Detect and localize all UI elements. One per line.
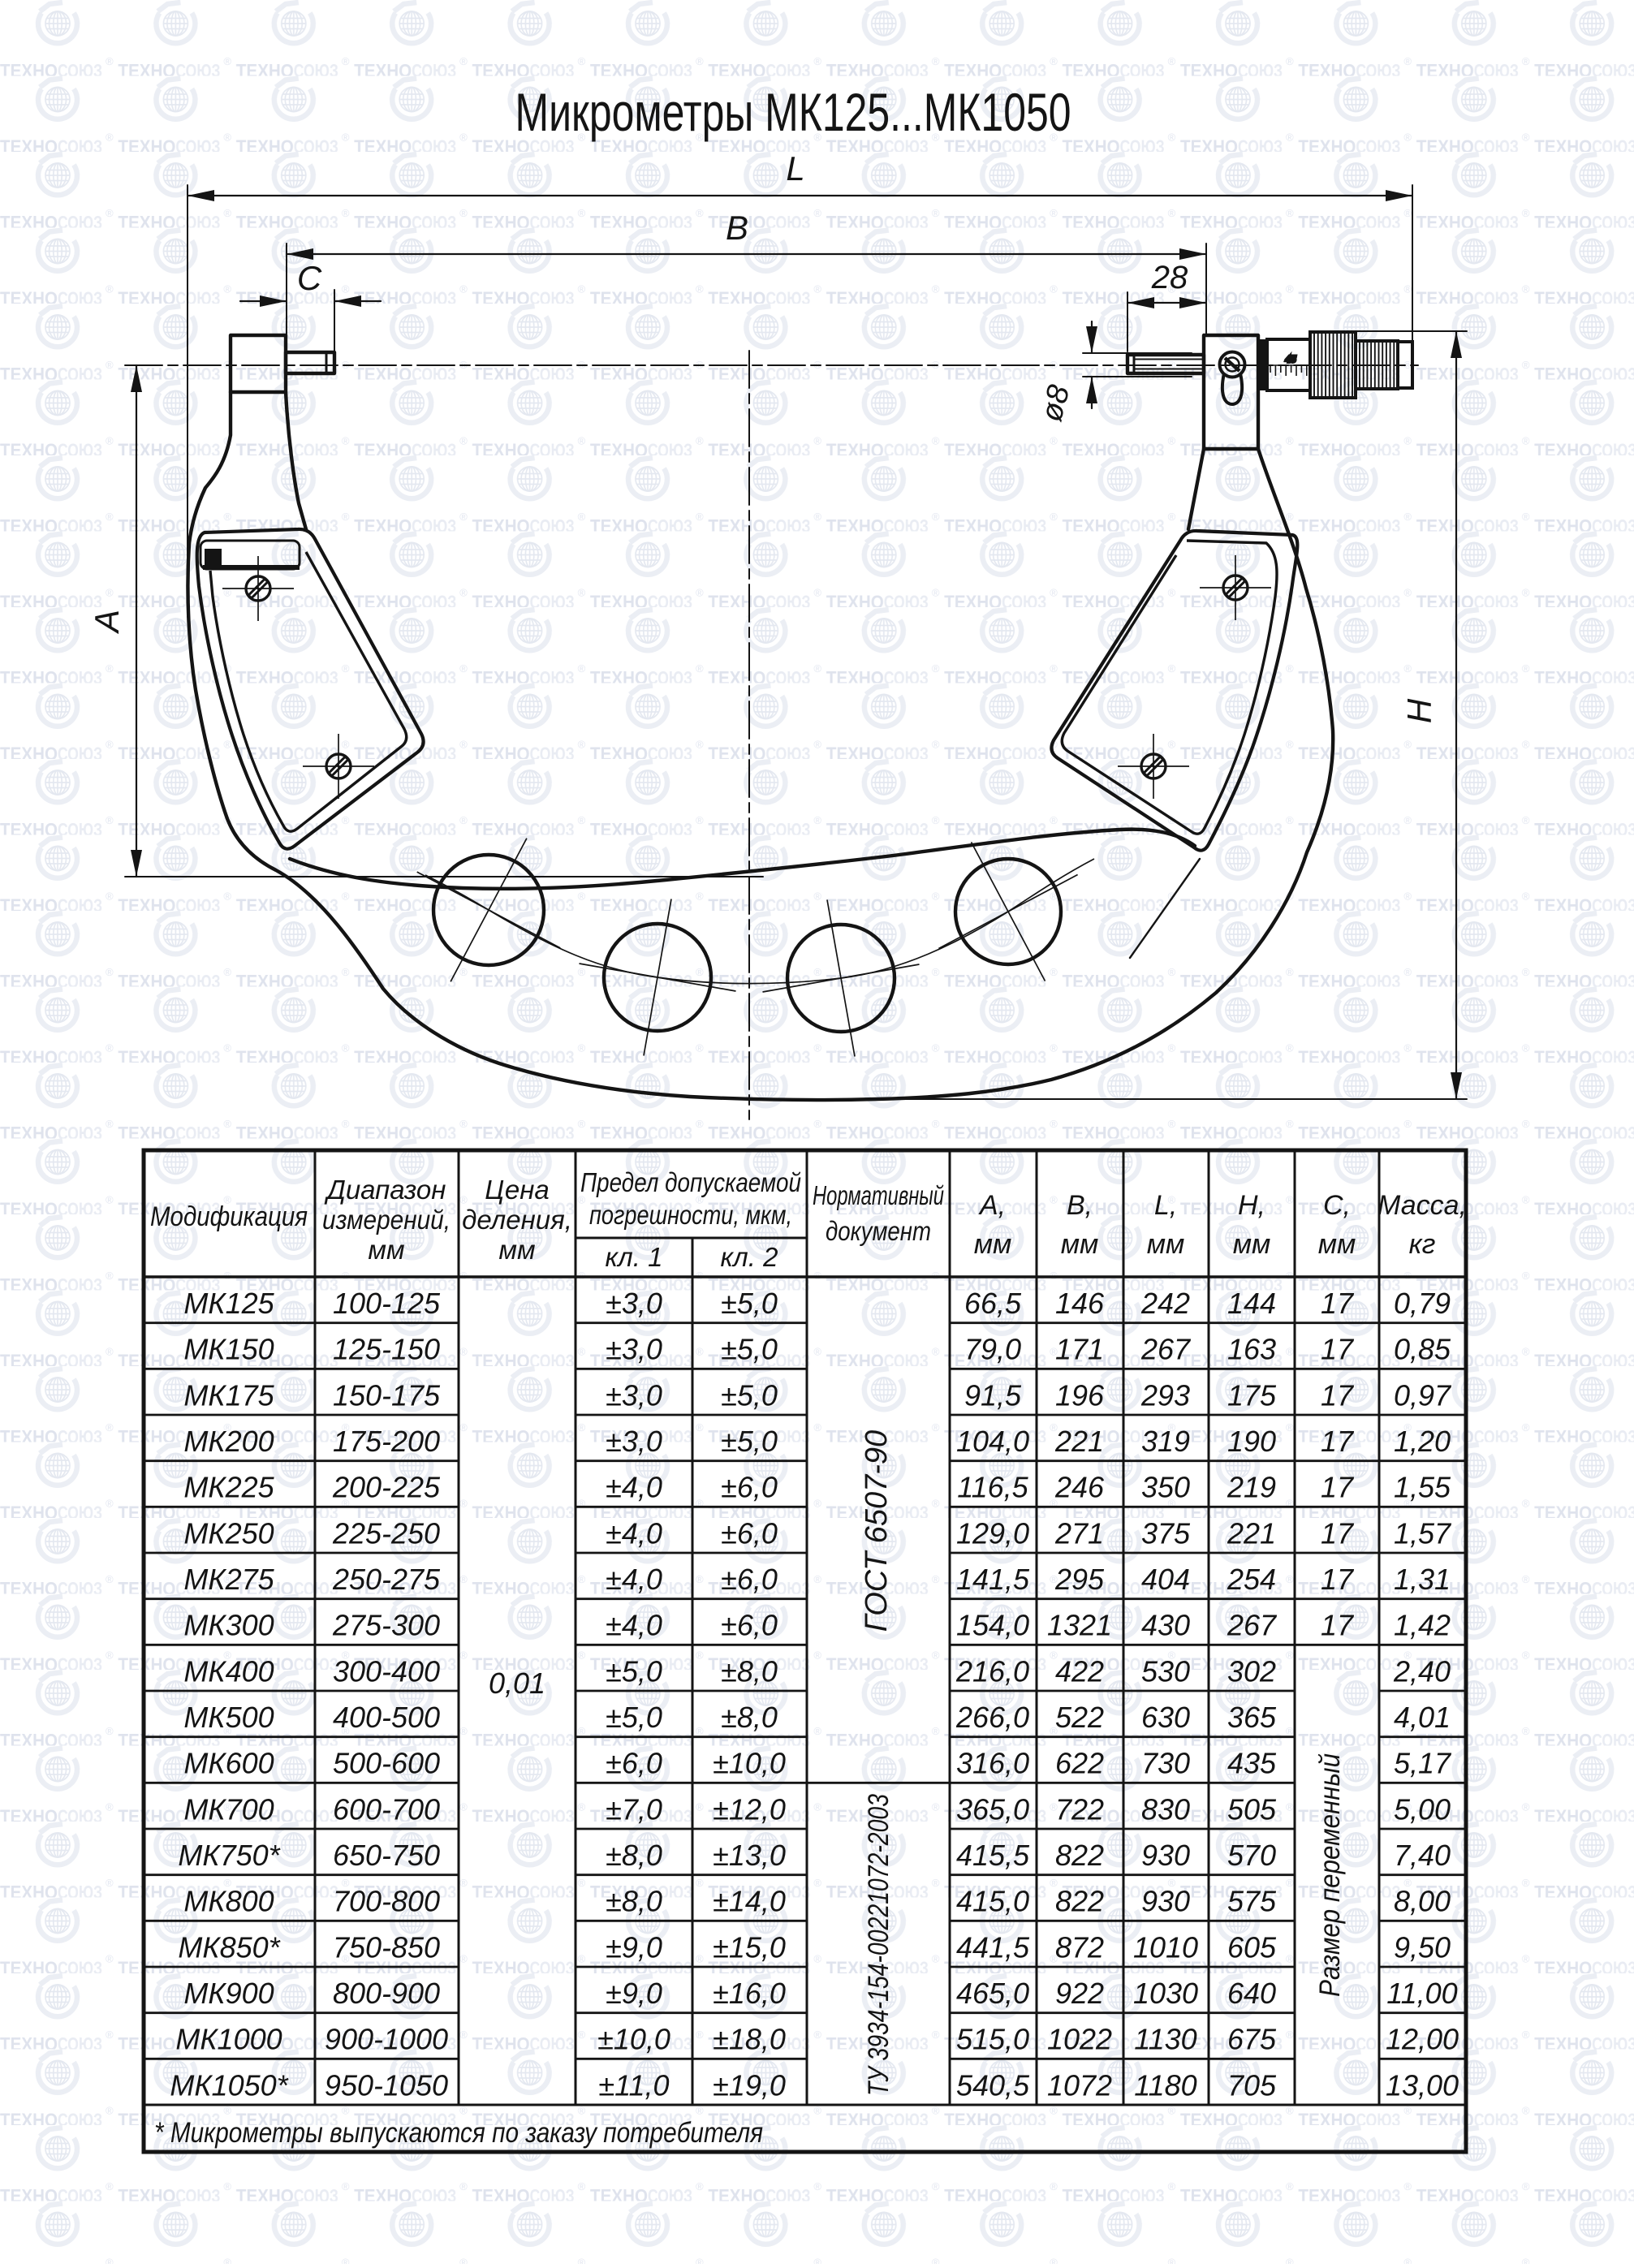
svg-text:±7,0: ±7,0 <box>606 1792 662 1826</box>
svg-text:430: 430 <box>1141 1609 1190 1642</box>
svg-text:МК400: МК400 <box>183 1654 274 1688</box>
svg-text:МК250: МК250 <box>183 1516 274 1550</box>
svg-text:Модификация: Модификация <box>150 1201 308 1232</box>
svg-text:мм: мм <box>1233 1229 1271 1260</box>
svg-text:4,01: 4,01 <box>1394 1701 1451 1734</box>
svg-text:1321: 1321 <box>1047 1609 1112 1642</box>
svg-text:±10,0: ±10,0 <box>597 2023 670 2056</box>
svg-text:погрешности, мкм,: погрешности, мкм, <box>589 1200 792 1230</box>
svg-text:0,01: 0,01 <box>489 1667 545 1700</box>
svg-text:79,0: 79,0 <box>964 1333 1021 1366</box>
svg-text:±6,0: ±6,0 <box>721 1471 778 1504</box>
svg-text:300-400: 300-400 <box>333 1654 440 1688</box>
svg-text:500-600: 500-600 <box>333 1747 440 1780</box>
svg-text:540,5: 540,5 <box>956 2068 1030 2102</box>
svg-text:МК900: МК900 <box>183 1977 274 2010</box>
svg-text:±15,0: ±15,0 <box>713 1930 786 1964</box>
svg-text:мм: мм <box>974 1229 1012 1260</box>
svg-text:722: 722 <box>1055 1792 1104 1826</box>
svg-text:±5,0: ±5,0 <box>721 1425 778 1458</box>
svg-text:±6,0: ±6,0 <box>721 1516 778 1550</box>
svg-text:±8,0: ±8,0 <box>721 1701 778 1734</box>
svg-text:МК1050*: МК1050* <box>170 2068 288 2102</box>
svg-text:* Микрометры выпускаются по за: * Микрометры выпускаются по заказу потре… <box>154 2117 763 2149</box>
svg-text:ГОСТ 6507-90: ГОСТ 6507-90 <box>860 1430 894 1632</box>
svg-text:100-125: 100-125 <box>333 1287 441 1320</box>
svg-text:316,0: 316,0 <box>956 1747 1029 1780</box>
svg-text:17: 17 <box>1321 1516 1355 1550</box>
svg-text:МК225: МК225 <box>183 1471 274 1504</box>
svg-text:154,0: 154,0 <box>956 1609 1029 1642</box>
svg-text:622: 622 <box>1055 1747 1104 1780</box>
svg-text:28: 28 <box>1151 260 1188 295</box>
svg-text:мм: мм <box>1318 1229 1356 1260</box>
svg-text:141,5: 141,5 <box>956 1563 1030 1596</box>
svg-text:171: 171 <box>1055 1333 1104 1366</box>
svg-text:МК800: МК800 <box>183 1885 274 1918</box>
svg-text:465,0: 465,0 <box>956 1977 1029 2010</box>
svg-text:измерений,: измерений, <box>322 1205 451 1235</box>
svg-text:116,5: 116,5 <box>957 1471 1028 1504</box>
svg-text:±9,0: ±9,0 <box>606 1930 662 1964</box>
svg-text:822: 822 <box>1055 1885 1104 1918</box>
svg-text:кл. 2: кл. 2 <box>721 1242 778 1272</box>
svg-text:700-800: 700-800 <box>333 1885 440 1918</box>
svg-text:МК1000: МК1000 <box>175 2023 282 2056</box>
svg-text:МК175: МК175 <box>183 1378 274 1412</box>
svg-text:630: 630 <box>1141 1701 1190 1734</box>
svg-text:документ: документ <box>826 1216 931 1246</box>
svg-text:530: 530 <box>1141 1654 1190 1688</box>
svg-text:±6,0: ±6,0 <box>721 1563 778 1596</box>
svg-text:822: 822 <box>1055 1839 1104 1872</box>
svg-text:±5,0: ±5,0 <box>721 1287 778 1320</box>
svg-text:930: 930 <box>1141 1885 1190 1918</box>
svg-text:Масса,: Масса, <box>1377 1190 1467 1221</box>
svg-text:950-1050: 950-1050 <box>325 2068 448 2102</box>
svg-text:350: 350 <box>1141 1471 1190 1504</box>
svg-text:±3,0: ±3,0 <box>606 1425 662 1458</box>
svg-text:ТУ 3934-154-00221072-2003: ТУ 3934-154-00221072-2003 <box>863 1794 895 2096</box>
svg-text:146: 146 <box>1055 1287 1105 1320</box>
svg-text:1022: 1022 <box>1047 2023 1112 2056</box>
svg-text:246: 246 <box>1054 1471 1105 1504</box>
svg-text:17: 17 <box>1321 1609 1355 1642</box>
svg-text:L,: L, <box>1154 1190 1177 1221</box>
svg-text:400-500: 400-500 <box>333 1701 440 1734</box>
svg-text:1,55: 1,55 <box>1394 1471 1451 1504</box>
svg-text:730: 730 <box>1141 1747 1190 1780</box>
svg-text:8,00: 8,00 <box>1394 1885 1451 1918</box>
svg-text:104,0: 104,0 <box>956 1425 1029 1458</box>
svg-text:±18,0: ±18,0 <box>713 2023 786 2056</box>
svg-text:Нормативный: Нормативный <box>813 1180 944 1210</box>
svg-text:В,: В, <box>1067 1190 1093 1221</box>
svg-text:±13,0: ±13,0 <box>713 1839 786 1872</box>
svg-text:±8,0: ±8,0 <box>606 1839 662 1872</box>
svg-text:1010: 1010 <box>1133 1930 1198 1964</box>
svg-text:196: 196 <box>1055 1378 1105 1412</box>
svg-text:С,: С, <box>1323 1190 1351 1221</box>
svg-text:мм: мм <box>1061 1229 1099 1260</box>
svg-text:±6,0: ±6,0 <box>721 1609 778 1642</box>
svg-text:7,40: 7,40 <box>1394 1839 1451 1872</box>
svg-text:150-175: 150-175 <box>333 1378 441 1412</box>
svg-text:1,20: 1,20 <box>1394 1425 1451 1458</box>
svg-text:Цена: Цена <box>485 1175 550 1205</box>
svg-text:570: 570 <box>1227 1839 1276 1872</box>
svg-text:17: 17 <box>1321 1287 1355 1320</box>
svg-text:605: 605 <box>1227 1930 1277 1964</box>
svg-text:мм: мм <box>498 1235 535 1265</box>
svg-text:±4,0: ±4,0 <box>606 1516 662 1550</box>
svg-text:1130: 1130 <box>1134 2023 1196 2056</box>
svg-text:±4,0: ±4,0 <box>606 1471 662 1504</box>
svg-text:271: 271 <box>1054 1516 1104 1550</box>
svg-text:±5,0: ±5,0 <box>721 1378 778 1412</box>
svg-text:705: 705 <box>1227 2068 1277 2102</box>
svg-text:17: 17 <box>1321 1333 1355 1366</box>
svg-text:±4,0: ±4,0 <box>606 1563 662 1596</box>
svg-text:267: 267 <box>1140 1333 1192 1366</box>
svg-text:650-750: 650-750 <box>333 1839 440 1872</box>
svg-text:17: 17 <box>1321 1378 1355 1412</box>
svg-text:293: 293 <box>1140 1378 1190 1412</box>
svg-text:266,0: 266,0 <box>955 1701 1029 1734</box>
svg-text:144: 144 <box>1227 1287 1276 1320</box>
svg-text:±5,0: ±5,0 <box>606 1654 662 1688</box>
svg-text:17: 17 <box>1321 1471 1355 1504</box>
svg-text:0,79: 0,79 <box>1394 1287 1451 1320</box>
svg-text:225-250: 225-250 <box>332 1516 440 1550</box>
svg-text:МК500: МК500 <box>183 1701 274 1734</box>
svg-text:750-850: 750-850 <box>333 1930 440 1964</box>
svg-text:922: 922 <box>1055 1977 1104 2010</box>
svg-text:12,00: 12,00 <box>1386 2023 1459 2056</box>
svg-text:5,17: 5,17 <box>1394 1747 1452 1780</box>
svg-text:415,5: 415,5 <box>956 1839 1030 1872</box>
svg-text:1,31: 1,31 <box>1394 1563 1451 1596</box>
svg-text:1,57: 1,57 <box>1394 1516 1452 1550</box>
svg-text:Микрометры МК125...МК1050: Микрометры МК125...МК1050 <box>515 82 1071 142</box>
svg-text:800-900: 800-900 <box>333 1977 440 2010</box>
svg-text:91,5: 91,5 <box>964 1378 1022 1412</box>
svg-text:Н: Н <box>1400 698 1438 723</box>
svg-text:±9,0: ±9,0 <box>606 1977 662 2010</box>
svg-text:±8,0: ±8,0 <box>721 1654 778 1688</box>
svg-text:±10,0: ±10,0 <box>713 1747 786 1780</box>
svg-text:45: 45 <box>1286 355 1296 364</box>
svg-text:±6,0: ±6,0 <box>606 1747 662 1780</box>
svg-text:±14,0: ±14,0 <box>713 1885 786 1918</box>
svg-text:575: 575 <box>1227 1885 1277 1918</box>
svg-text:175-200: 175-200 <box>333 1425 440 1458</box>
svg-text:1072: 1072 <box>1047 2068 1112 2102</box>
svg-text:±3,0: ±3,0 <box>606 1287 662 1320</box>
svg-text:МК275: МК275 <box>183 1563 274 1596</box>
svg-text:219: 219 <box>1227 1471 1276 1504</box>
svg-text:МК125: МК125 <box>183 1287 274 1320</box>
svg-text:Диапазон: Диапазон <box>324 1175 446 1205</box>
svg-text:295: 295 <box>1054 1563 1105 1596</box>
svg-text:±4,0: ±4,0 <box>606 1609 662 1642</box>
svg-text:МК750*: МК750* <box>178 1839 280 1872</box>
svg-text:±3,0: ±3,0 <box>606 1378 662 1412</box>
svg-text:9,50: 9,50 <box>1394 1930 1451 1964</box>
svg-text:600-700: 600-700 <box>333 1792 440 1826</box>
svg-text:515,0: 515,0 <box>956 2023 1029 2056</box>
svg-text:242: 242 <box>1140 1287 1190 1320</box>
svg-text:365: 365 <box>1227 1701 1277 1734</box>
svg-text:129,0: 129,0 <box>956 1516 1029 1550</box>
svg-text:±8,0: ±8,0 <box>606 1885 662 1918</box>
svg-text:216,0: 216,0 <box>955 1654 1029 1688</box>
svg-text:365,0: 365,0 <box>956 1792 1029 1826</box>
svg-text:МК700: МК700 <box>183 1792 274 1826</box>
svg-text:L: L <box>786 149 804 188</box>
svg-text:B: B <box>726 209 748 247</box>
svg-text:17: 17 <box>1321 1425 1355 1458</box>
svg-text:221: 221 <box>1227 1516 1276 1550</box>
svg-text:275-300: 275-300 <box>332 1609 440 1642</box>
svg-text:МК600: МК600 <box>183 1747 274 1780</box>
svg-text:319: 319 <box>1141 1425 1190 1458</box>
svg-text:302: 302 <box>1227 1654 1276 1688</box>
svg-text:125-150: 125-150 <box>333 1333 440 1366</box>
svg-text:13,00: 13,00 <box>1386 2068 1459 2102</box>
svg-text:0,97: 0,97 <box>1394 1378 1452 1412</box>
svg-text:деления,: деления, <box>462 1205 572 1235</box>
svg-text:А,: А, <box>978 1190 1006 1221</box>
svg-text:17: 17 <box>1321 1563 1355 1596</box>
svg-text:мм: мм <box>1147 1229 1185 1260</box>
svg-text:175: 175 <box>1227 1378 1277 1412</box>
svg-text:2,40: 2,40 <box>1393 1654 1451 1688</box>
svg-text:±11,0: ±11,0 <box>598 2068 669 2102</box>
svg-text:МК200: МК200 <box>183 1425 274 1458</box>
svg-text:250-275: 250-275 <box>332 1563 441 1596</box>
svg-text:±19,0: ±19,0 <box>713 2068 786 2102</box>
svg-text:254: 254 <box>1227 1563 1276 1596</box>
svg-text:Предел допускаемой: Предел допускаемой <box>580 1167 801 1197</box>
svg-text:66,5: 66,5 <box>964 1287 1022 1320</box>
svg-text:375: 375 <box>1141 1516 1191 1550</box>
svg-text:1,42: 1,42 <box>1394 1609 1451 1642</box>
svg-text:267: 267 <box>1227 1609 1278 1642</box>
svg-text:163: 163 <box>1227 1333 1276 1366</box>
svg-text:640: 640 <box>1227 1977 1276 2010</box>
svg-text:505: 505 <box>1227 1792 1277 1826</box>
svg-text:872: 872 <box>1055 1930 1104 1964</box>
svg-text:11,00: 11,00 <box>1386 1977 1457 2010</box>
svg-text:±5,0: ±5,0 <box>606 1701 662 1734</box>
svg-text:А: А <box>88 610 126 635</box>
svg-text:830: 830 <box>1141 1792 1190 1826</box>
svg-text:190: 190 <box>1227 1425 1276 1458</box>
svg-text:900-1000: 900-1000 <box>325 2023 448 2056</box>
svg-text:Размер переменный: Размер переменный <box>1314 1753 1346 1997</box>
svg-text:±16,0: ±16,0 <box>713 1977 786 2010</box>
svg-text:МК300: МК300 <box>183 1609 274 1642</box>
svg-text:МК150: МК150 <box>183 1333 274 1366</box>
svg-text:675: 675 <box>1227 2023 1277 2056</box>
svg-text:кл. 1: кл. 1 <box>606 1242 663 1272</box>
svg-text:кг: кг <box>1409 1229 1436 1260</box>
svg-text:C: C <box>297 259 322 297</box>
svg-text:Н,: Н, <box>1238 1190 1265 1221</box>
svg-text:мм: мм <box>368 1235 404 1265</box>
svg-text:1180: 1180 <box>1134 2068 1196 2102</box>
svg-text:±5,0: ±5,0 <box>721 1333 778 1366</box>
svg-text:930: 930 <box>1141 1839 1190 1872</box>
svg-text:522: 522 <box>1055 1701 1104 1734</box>
svg-text:5,00: 5,00 <box>1394 1792 1451 1826</box>
svg-text:1030: 1030 <box>1133 1977 1198 2010</box>
svg-text:200-225: 200-225 <box>332 1471 441 1504</box>
svg-text:435: 435 <box>1227 1747 1277 1780</box>
svg-text:0,85: 0,85 <box>1394 1333 1451 1366</box>
svg-text:±12,0: ±12,0 <box>713 1792 786 1826</box>
svg-text:МК850*: МК850* <box>178 1930 280 1964</box>
svg-text:±3,0: ±3,0 <box>606 1333 662 1366</box>
svg-text:422: 422 <box>1055 1654 1104 1688</box>
svg-text:221: 221 <box>1054 1425 1104 1458</box>
svg-text:415,0: 415,0 <box>956 1885 1029 1918</box>
svg-text:441,5: 441,5 <box>956 1930 1030 1964</box>
svg-text:404: 404 <box>1141 1563 1190 1596</box>
